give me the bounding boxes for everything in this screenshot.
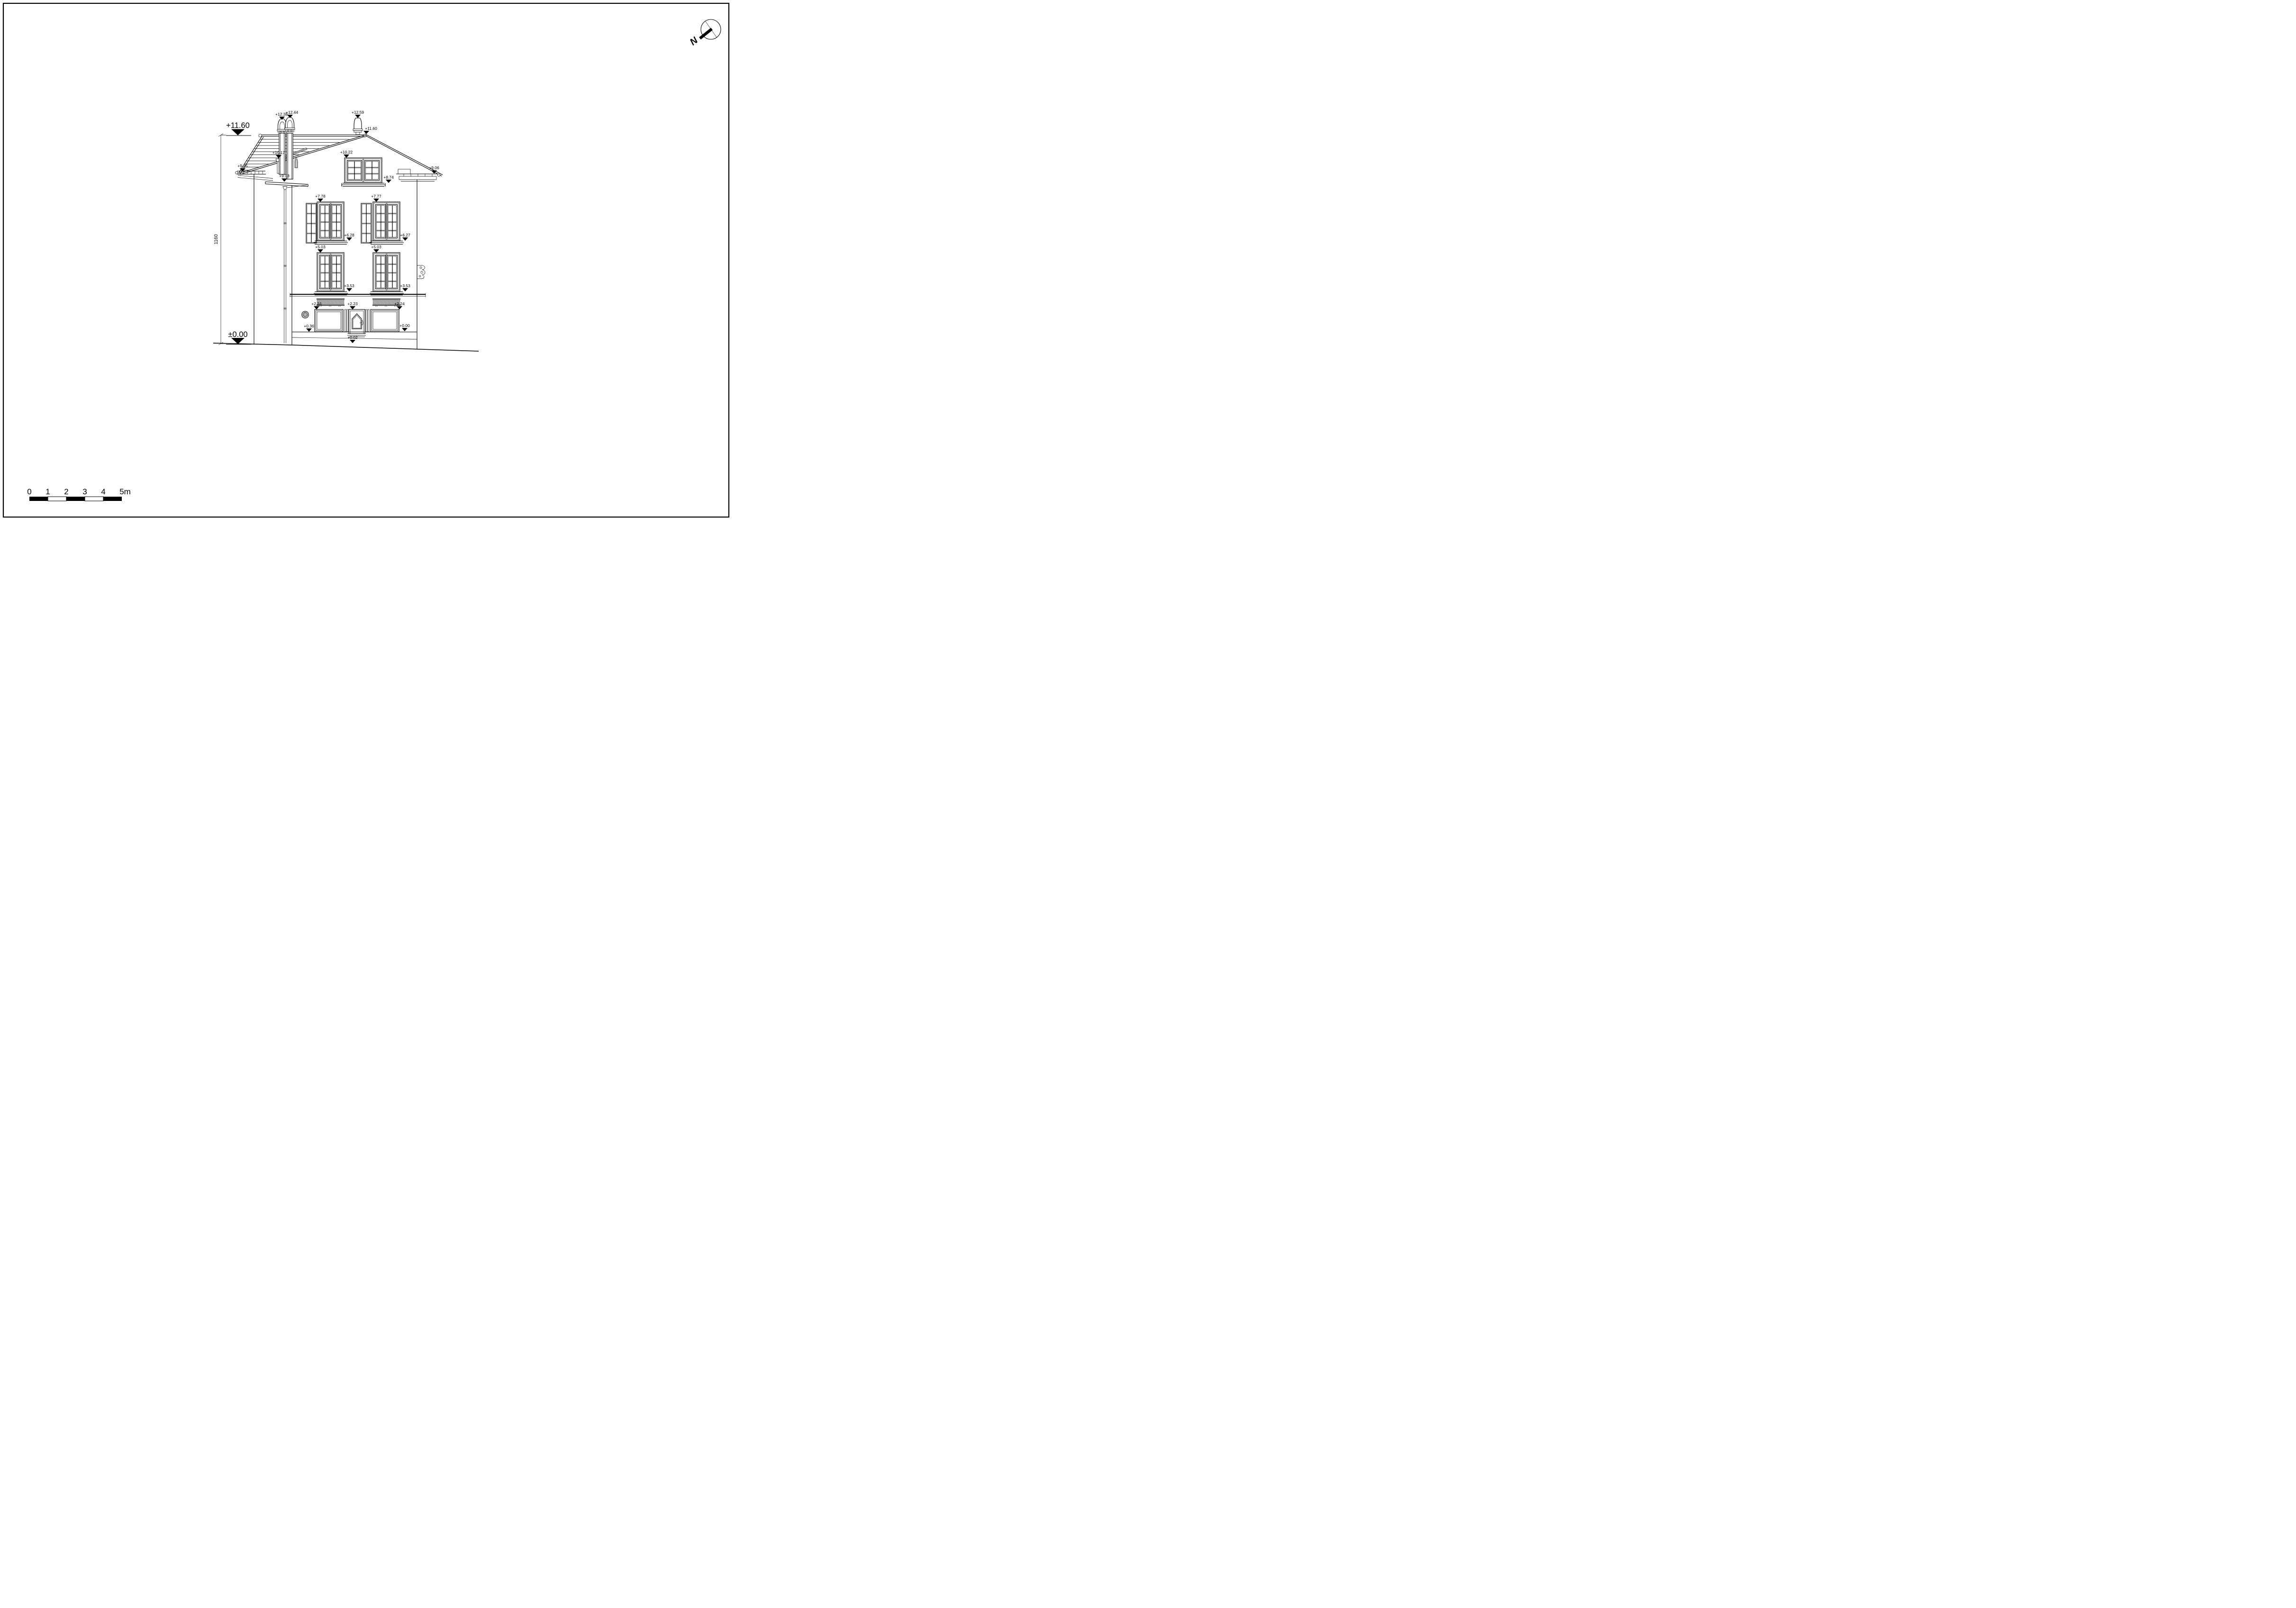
marker-eaves-left-lower: +9.03 [279,173,290,182]
marker-floor2-right-sill: +6.27 [400,233,410,241]
scale-segment [48,497,66,501]
marker-value: +9.35 [237,164,248,168]
height-dimension: 1160 [214,134,226,345]
shutter-floor2-left [306,203,317,243]
sill-floor2-right [370,241,404,245]
ground-line [213,343,479,351]
marker-value: +12.44 [286,110,299,115]
marker-floor1-right-top: +5.03 [371,245,381,253]
level-label-top: +11.60 [226,121,251,136]
shop-window-left [315,309,343,332]
entrance-door [347,309,366,337]
ridge-finial [353,118,363,135]
scale-segment [85,497,103,501]
architectural-elevation-drawing: N 1160 +11.60 ±0.00 [0,0,732,520]
window-floor1-left [317,253,344,291]
attic-window [345,158,382,183]
marker-door-top: +2.23 [347,301,358,309]
north-label: N [688,35,700,48]
marker-value: +9.06 [429,165,439,170]
scale-segment [29,497,48,501]
marker-chimney-right: +12.44 [286,110,299,118]
marker-value: +7.78 [315,194,326,199]
marker-ground-right: +0.00 [399,323,410,331]
marker-value: +8.74 [383,175,394,180]
top-level-text: +11.60 [226,121,250,130]
marker-shop-left-top: +2.24 [311,301,322,309]
marker-value: +2.24 [394,301,405,306]
marker-value: +3.53 [400,283,410,288]
chimney-right [285,117,295,179]
marker-value: +0.00 [399,323,410,328]
marker-value: +9.03 [279,173,290,178]
sill-floor2-left [314,241,348,245]
scale-segment [103,497,122,501]
marker-value: +10.17 [272,150,285,155]
marker-floor1-right-sill: +3.53 [400,283,410,291]
marker-attic-window-top: +10.22 [340,150,353,158]
scale-label: 5m [119,487,131,496]
window-floor2-right [373,202,400,241]
marker-floor1-left-sill: +3.53 [344,283,354,291]
ground-level-text: ±0.00 [228,330,247,339]
ridge [259,134,366,137]
level-label-bottom: ±0.00 [226,330,251,345]
downspout [283,187,287,344]
marker-value: +11.60 [365,126,377,131]
marker-shop-right-top: +2.24 [394,301,405,309]
sheet-border [3,3,729,517]
marker-floor2-left-top: +7.78 [315,194,326,202]
marker-floor2-right-top: +7.77 [371,194,381,202]
scale-label: 2 [64,487,68,496]
marker-value: +6.28 [344,233,354,237]
marker-value: +12.59 [352,110,364,115]
marker-shop-left-sill: +0.36 [304,324,314,332]
scale-bar: 0 1 2 3 4 5m [27,487,131,501]
scale-label: 4 [101,487,105,496]
rosette-ornament [302,311,309,318]
iron-bracket-ornament [417,265,425,279]
marker-value: +7.77 [371,194,381,199]
marker-value: +5.03 [315,245,326,249]
shutter-floor2-right [361,203,372,243]
marker-value: +10.22 [340,150,353,154]
drawing-sheet: N 1160 +11.60 ±0.00 [0,0,732,520]
scale-label: 0 [27,487,31,496]
marker-ridge: +11.60 [363,126,377,134]
pilaster-left [345,309,348,332]
marker-eaves-left-upper: +9.35 [237,164,248,172]
canopy-band [290,293,426,298]
window-floor2-left [317,202,344,241]
window-floor1-right [373,253,400,291]
marker-floor2-left-sill: +6.28 [344,233,354,241]
pilaster-right [366,309,370,332]
roof-dormer-vent-right [295,158,298,168]
marker-door-threshold: +0.02 [347,335,358,343]
height-dimension-value: 1160 [214,234,219,245]
scale-segment [66,497,85,501]
north-compass: N [688,19,721,47]
marker-ridge-finial: +12.59 [352,110,364,118]
attic-window-sill [342,183,385,187]
marker-value: +0.36 [304,324,314,328]
marker-value: +3.53 [344,283,354,288]
marker-value: +2.23 [347,301,358,306]
marker-value: +0.02 [347,335,358,340]
shop-window-right [371,309,399,332]
marker-value: +6.27 [400,233,410,237]
scale-label: 1 [45,487,50,496]
marker-value: +5.03 [371,245,381,249]
scale-label: 3 [82,487,87,496]
marker-floor1-left-top: +5.03 [315,245,326,253]
marker-value: +2.24 [311,301,322,306]
marker-attic-window-sill: +8.74 [383,175,394,183]
